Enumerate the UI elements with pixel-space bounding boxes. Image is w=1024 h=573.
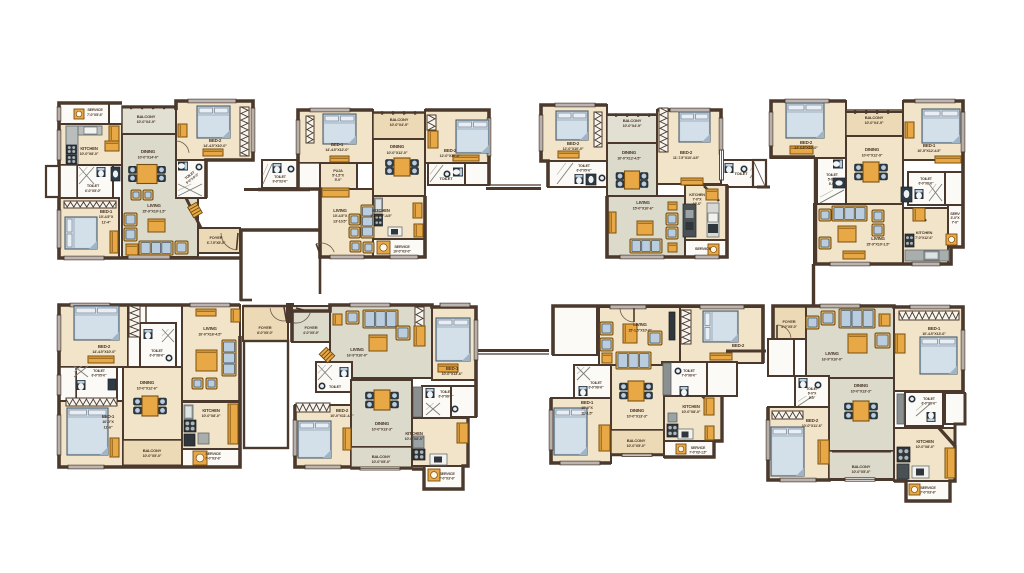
svg-text:10'-0"X12'-6": 10'-0"X12'-6" [137, 386, 158, 390]
svg-text:DINING: DINING [375, 421, 390, 426]
svg-text:14'-4.5"X10'-0": 14'-4.5"X10'-0" [203, 144, 227, 148]
svg-text:BALCONY: BALCONY [627, 438, 646, 443]
svg-text:KITCHEN: KITCHEN [916, 230, 933, 235]
svg-text:LIVING: LIVING [350, 347, 364, 352]
svg-text:BED-1: BED-1 [581, 400, 594, 405]
svg-text:KITCHEN: KITCHEN [682, 404, 700, 409]
svg-text:SERVICE: SERVICE [920, 486, 936, 490]
svg-text:KITCHEN: KITCHEN [372, 208, 390, 213]
svg-text:10'-0"X11'-6": 10'-0"X11'-6" [802, 424, 823, 428]
svg-text:10'-0"X5'-0": 10'-0"X5'-0" [372, 460, 391, 464]
svg-text:10'-6": 10'-6" [693, 202, 702, 206]
svg-text:6'-0"X8'-0": 6'-0"X8'-0" [919, 181, 934, 185]
svg-text:SERVICE: SERVICE [695, 246, 712, 251]
svg-text:SERVICE: SERVICE [394, 245, 410, 249]
svg-text:6'-0"X8'-0": 6'-0"X8'-0" [922, 401, 937, 405]
svg-text:BED-2: BED-2 [567, 141, 580, 146]
svg-text:TOILET: TOILET [329, 385, 342, 389]
svg-text:KITCHEN: KITCHEN [916, 439, 934, 444]
svg-text:BALCONY: BALCONY [623, 118, 642, 123]
svg-text:10'-0"X13'-3": 10'-0"X13'-3" [372, 427, 393, 431]
svg-text:16'-9"X10'-0": 16'-9"X10'-0" [347, 353, 368, 357]
svg-text:LIVING: LIVING [203, 326, 217, 331]
svg-text:7'-0": 7'-0" [952, 220, 959, 224]
svg-text:10'-0"X14'-0": 10'-0"X14'-0" [138, 155, 159, 159]
svg-text:15'-1.5"X10'-0": 15'-1.5"X10'-0" [628, 328, 652, 332]
svg-text:BED-1: BED-1 [331, 142, 344, 147]
svg-text:10'-0"X5'-0": 10'-0"X5'-0" [143, 454, 162, 458]
svg-text:6'-7.5"X5'-0": 6'-7.5"X5'-0" [207, 241, 226, 245]
svg-text:SERVICE: SERVICE [439, 472, 455, 476]
svg-text:12'-0"X10'-0": 12'-0"X10'-0" [563, 147, 584, 151]
svg-text:BED-2: BED-2 [680, 150, 693, 155]
svg-text:10'-0"X4'-9": 10'-0"X4'-9" [623, 124, 642, 128]
svg-text:14'-6.5"X10'-0": 14'-6.5"X10'-0" [794, 146, 818, 150]
svg-text:10'-0"X: 10'-0"X [581, 406, 593, 410]
svg-text:BALCONY: BALCONY [372, 454, 391, 459]
svg-text:BED-2: BED-2 [800, 140, 813, 145]
svg-text:5'-1.5"X: 5'-1.5"X [332, 174, 344, 178]
svg-text:10'-0"X13'-6": 10'-0"X13'-6" [442, 372, 463, 376]
svg-text:11'-4": 11'-4" [101, 220, 110, 224]
svg-text:10'-5"X12'-4.5": 10'-5"X12'-4.5" [917, 149, 941, 153]
svg-text:BALCONY: BALCONY [865, 115, 884, 120]
svg-text:10'-0"X13'-3": 10'-0"X13'-3" [627, 414, 648, 418]
svg-text:10'-0"X4'-9": 10'-0"X4'-9" [137, 120, 156, 124]
svg-text:LIVING: LIVING [871, 236, 885, 241]
svg-text:BED-1: BED-1 [102, 414, 115, 419]
svg-text:10'-0"X3'-0": 10'-0"X3'-0" [393, 250, 411, 254]
svg-text:10'-4.5"X: 10'-4.5"X [333, 214, 348, 218]
svg-text:FOYER: FOYER [305, 325, 318, 330]
svg-text:BED-2: BED-2 [732, 343, 745, 348]
svg-text:10'-0"X12'-9": 10'-0"X12'-9" [862, 153, 883, 157]
svg-text:BED-1: BED-1 [923, 143, 936, 148]
svg-text:BED-2: BED-2 [209, 138, 222, 143]
svg-text:BED-1: BED-1 [928, 326, 941, 331]
svg-text:10'-0"X12'-4.5": 10'-0"X12'-4.5" [617, 156, 641, 160]
svg-text:TOILET: TOILET [578, 164, 591, 168]
svg-text:LIVING: LIVING [147, 203, 161, 208]
svg-text:BALCONY: BALCONY [137, 114, 156, 119]
svg-text:DINING: DINING [390, 144, 405, 149]
svg-text:10'-0"X5'-0": 10'-0"X5'-0" [627, 444, 646, 448]
svg-text:BALCONY: BALCONY [852, 464, 871, 469]
svg-text:10'-0"X12'-0": 10'-0"X12'-0" [387, 151, 408, 155]
svg-text:10'-0"X7'-4.5": 10'-0"X7'-4.5" [370, 214, 392, 218]
svg-text:TOILET: TOILET [683, 369, 696, 373]
svg-text:10'-0"X4'-9": 10'-0"X4'-9" [390, 123, 409, 127]
svg-text:6'-0"X5'-0": 6'-0"X5'-0" [577, 168, 592, 172]
svg-text:SERVICE: SERVICE [205, 452, 221, 456]
svg-text:DINING: DINING [622, 150, 637, 155]
svg-text:7'-0"X5'-6": 7'-0"X5'-6" [87, 113, 103, 117]
svg-text:10'-0"X8'-0": 10'-0"X8'-0" [682, 410, 701, 414]
svg-text:TOILET: TOILET [151, 349, 164, 353]
svg-text:11'-1.5": 11'-1.5" [581, 411, 593, 415]
svg-text:DINING: DINING [141, 149, 156, 154]
svg-text:FOYER: FOYER [783, 319, 796, 324]
svg-text:TOILET: TOILET [734, 171, 748, 176]
svg-text:LIVING: LIVING [633, 322, 647, 327]
svg-text:6'-0"X: 6'-0"X [808, 391, 817, 395]
svg-text:10'-0"X11'-4.5": 10'-0"X11'-4.5" [330, 414, 354, 418]
svg-text:FOYER: FOYER [210, 235, 223, 240]
svg-text:TOILET: TOILET [920, 177, 933, 181]
svg-text:5'-0"X: 5'-0"X [828, 177, 837, 181]
svg-text:6'-0"X8'-0": 6'-0"X8'-0" [150, 353, 165, 357]
svg-text:10'-0"X8'-0": 10'-0"X8'-0" [80, 152, 99, 156]
svg-text:13'-10.5": 13'-10.5" [333, 219, 347, 223]
svg-text:5'-0": 5'-0" [335, 178, 342, 182]
svg-text:SERVICE: SERVICE [691, 446, 706, 450]
svg-text:7'-0"X8'-0": 7'-0"X8'-0" [682, 373, 697, 377]
svg-text:FOYER: FOYER [259, 325, 272, 330]
svg-text:10'-0"X13'-3": 10'-0"X13'-3" [851, 389, 872, 393]
svg-text:7'-0"X3'-6": 7'-0"X3'-6" [439, 477, 455, 481]
svg-text:7'-0"X3'-6": 7'-0"X3'-6" [205, 457, 221, 461]
svg-text:10'-0"X8'-0": 10'-0"X8'-0" [202, 414, 221, 418]
svg-text:9'-0"X3'-0": 9'-0"X3'-0" [273, 179, 288, 183]
svg-text:BALCONY: BALCONY [143, 448, 162, 453]
svg-text:DINING: DINING [630, 408, 645, 413]
svg-text:KITCHEN: KITCHEN [689, 193, 705, 197]
svg-text:10'-0"X4'-9": 10'-0"X4'-9" [865, 121, 884, 125]
svg-text:14'-4.5"X12'-0": 14'-4.5"X12'-0" [325, 148, 349, 152]
svg-text:TOILET: TOILET [439, 176, 453, 181]
svg-text:TOILET: TOILET [923, 397, 936, 401]
svg-text:15'-9"X10'-1.5": 15'-9"X10'-1.5" [142, 209, 166, 213]
svg-text:15'-0"X10'-6": 15'-0"X10'-6" [633, 206, 654, 210]
svg-text:10'-4.5"X: 10'-4.5"X [99, 215, 114, 219]
svg-text:8'-0"X5'-0": 8'-0"X5'-0" [257, 331, 273, 335]
svg-text:TOILET: TOILET [806, 387, 819, 391]
svg-text:10'-0"X5'-0": 10'-0"X5'-0" [852, 470, 871, 474]
svg-text:8'-0": 8'-0" [829, 182, 836, 186]
svg-text:16'-9"X10'-0": 16'-9"X10'-0" [822, 357, 843, 361]
svg-text:TOILET: TOILET [93, 369, 106, 373]
svg-text:TOILET: TOILET [826, 173, 839, 177]
svg-text:6'-0"X5'-0": 6'-0"X5'-0" [92, 373, 107, 377]
svg-text:11'-7.5"X10'-4.5": 11'-7.5"X10'-4.5" [673, 156, 700, 160]
svg-text:10'-0"X8'-0": 10'-0"X8'-0" [405, 437, 424, 441]
svg-text:7'-0"X: 7'-0"X [692, 198, 702, 202]
svg-text:4'-0"X5'-9": 4'-0"X5'-9" [303, 331, 319, 335]
svg-text:TOILET: TOILET [274, 175, 287, 179]
svg-text:10'-0"X: 10'-0"X [102, 420, 114, 424]
svg-text:BED-2: BED-2 [336, 408, 349, 413]
svg-text:11'-6": 11'-6" [103, 425, 112, 429]
svg-text:LIVING: LIVING [636, 200, 650, 205]
svg-text:BED-1: BED-1 [446, 366, 459, 371]
svg-text:6'-0"X5'-0": 6'-0"X5'-0" [85, 189, 101, 193]
svg-text:SERVICE: SERVICE [87, 108, 103, 112]
svg-text:10'-4.5"X13'-6": 10'-4.5"X13'-6" [922, 332, 946, 336]
svg-text:6'-0"X8'-0": 6'-0"X8'-0" [589, 385, 604, 389]
svg-text:DINING: DINING [140, 380, 155, 385]
svg-text:DINING: DINING [854, 383, 869, 388]
svg-text:10'-0"X16'-4.5": 10'-0"X16'-4.5" [198, 332, 222, 336]
svg-text:LIVING: LIVING [825, 351, 839, 356]
svg-text:7'-0"X3'-6": 7'-0"X3'-6" [920, 491, 936, 495]
svg-text:KITCHEN: KITCHEN [405, 431, 423, 436]
svg-text:12'-0"X10'-0": 12'-0"X10'-0" [440, 154, 461, 158]
svg-text:7'-0"X12'-6": 7'-0"X12'-6" [915, 236, 933, 240]
svg-text:10'-0"X8'-0": 10'-0"X8'-0" [916, 445, 935, 449]
svg-text:BED-2: BED-2 [806, 418, 819, 423]
svg-text:BED-2: BED-2 [444, 148, 457, 153]
svg-text:TOILET: TOILET [590, 381, 603, 385]
svg-text:KITCHEN: KITCHEN [202, 408, 220, 413]
svg-text:7'-0"X3'-1.5": 7'-0"X3'-1.5" [689, 451, 707, 455]
svg-text:TOILET: TOILET [440, 390, 453, 394]
svg-text:BED-1: BED-1 [100, 209, 113, 214]
svg-text:8'-0": 8'-0" [809, 396, 816, 400]
svg-text:BED-2: BED-2 [98, 344, 111, 349]
svg-text:BALCONY: BALCONY [390, 117, 409, 122]
svg-text:TOILET: TOILET [87, 184, 100, 188]
svg-text:PUJA: PUJA [333, 169, 343, 173]
svg-text:6'-0"X8'-0": 6'-0"X8'-0" [439, 394, 454, 398]
svg-text:14'-4.5"X10'-0": 14'-4.5"X10'-0" [92, 350, 116, 354]
svg-text:4'-0"X5'-0": 4'-0"X5'-0" [781, 325, 797, 329]
svg-text:15'-9"X10'-1.5": 15'-9"X10'-1.5" [866, 242, 890, 246]
svg-text:KITCHEN: KITCHEN [80, 146, 98, 151]
svg-text:DINING: DINING [865, 147, 880, 152]
svg-text:LIVING: LIVING [333, 208, 347, 213]
